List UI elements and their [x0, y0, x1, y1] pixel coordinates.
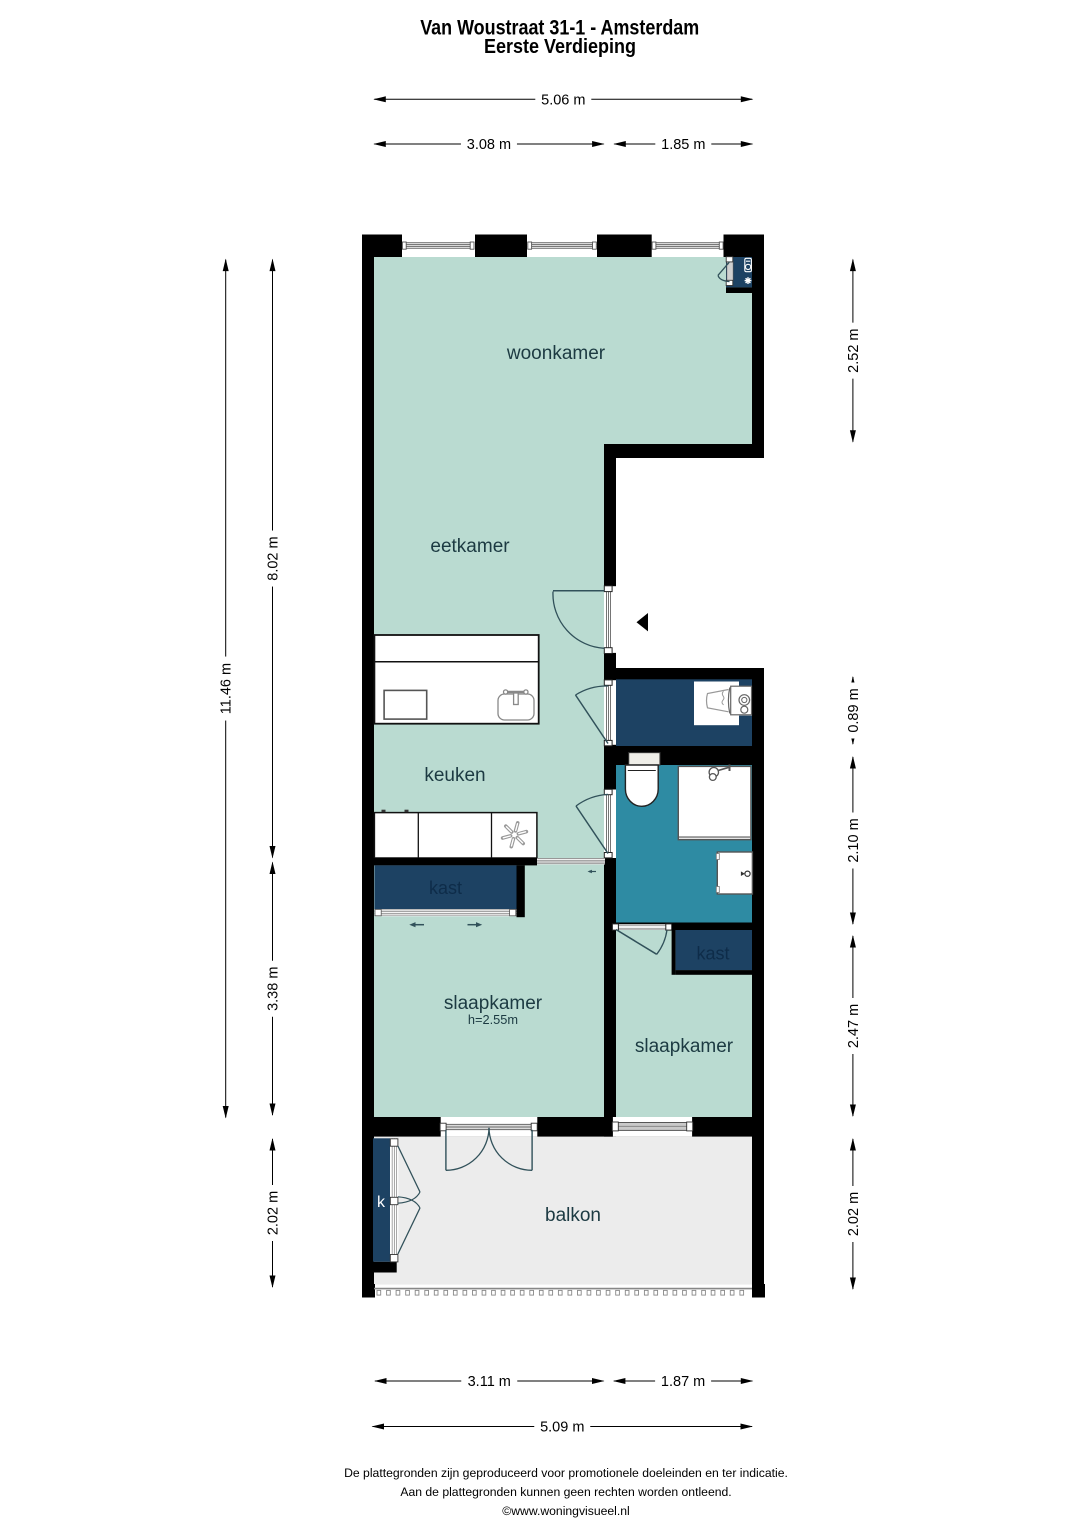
svg-text:eetkamer: eetkamer: [430, 536, 510, 557]
svg-text:2.52 m: 2.52 m: [846, 328, 862, 372]
svg-text:woonkamer: woonkamer: [506, 343, 606, 364]
svg-text:Aan de plattegronden kunnen ge: Aan de plattegronden kunnen geen rechten…: [400, 1485, 731, 1499]
svg-text:kast: kast: [429, 878, 462, 898]
svg-text:h=2.55m: h=2.55m: [468, 1012, 518, 1027]
svg-text:8.02 m: 8.02 m: [266, 536, 282, 580]
svg-text:©www.woningvisueel.nl: ©www.woningvisueel.nl: [502, 1504, 630, 1518]
svg-text:1.87 m: 1.87 m: [661, 1374, 705, 1390]
svg-text:balkon: balkon: [545, 1205, 601, 1226]
svg-text:2.10 m: 2.10 m: [846, 818, 862, 862]
svg-text:5.09 m: 5.09 m: [540, 1420, 584, 1436]
svg-text:slaapkamer: slaapkamer: [635, 1036, 734, 1057]
svg-text:slaapkamer: slaapkamer: [444, 993, 543, 1014]
svg-text:3.08 m: 3.08 m: [467, 137, 511, 153]
svg-text:2.02 m: 2.02 m: [266, 1191, 282, 1235]
svg-text:k: k: [377, 1194, 386, 1211]
svg-text:11.46 m: 11.46 m: [219, 663, 235, 714]
svg-text:1.85 m: 1.85 m: [661, 137, 705, 153]
svg-text:3.38 m: 3.38 m: [266, 967, 282, 1011]
svg-text:0.89 m: 0.89 m: [846, 688, 862, 732]
svg-text:kast: kast: [696, 944, 729, 964]
svg-text:Eerste Verdieping: Eerste Verdieping: [484, 35, 636, 58]
svg-text:5.06 m: 5.06 m: [541, 92, 585, 108]
svg-text:2.02 m: 2.02 m: [846, 1192, 862, 1236]
svg-text:2.47 m: 2.47 m: [846, 1004, 862, 1048]
svg-text:3.11 m: 3.11 m: [468, 1374, 511, 1390]
svg-text:De plattegronden zijn geproduc: De plattegronden zijn geproduceerd voor …: [344, 1466, 788, 1480]
svg-text:keuken: keuken: [424, 765, 485, 786]
